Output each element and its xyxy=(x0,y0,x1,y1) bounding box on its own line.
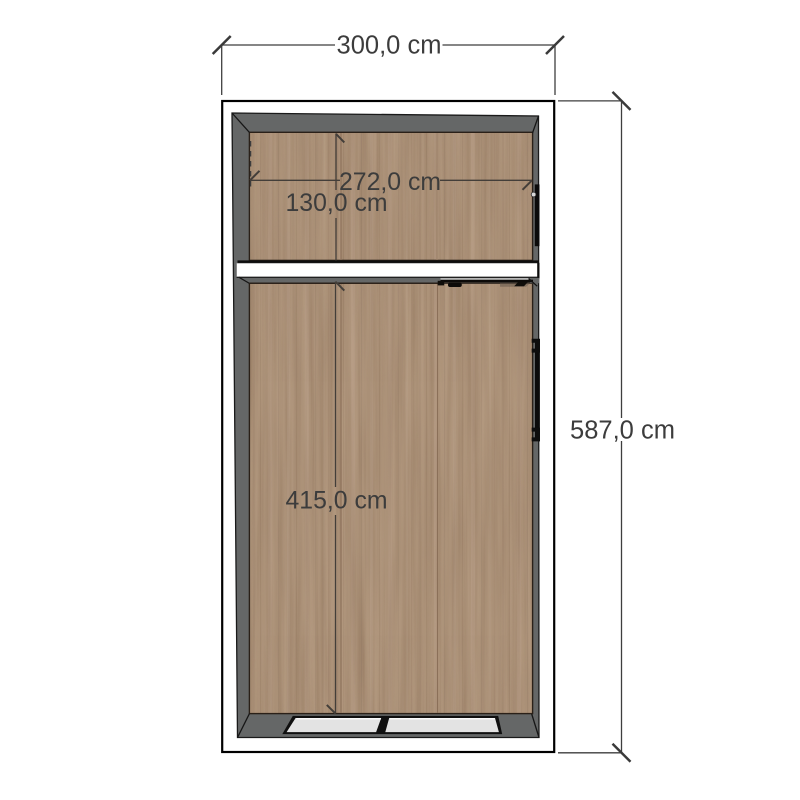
svg-text:415,0 cm: 415,0 cm xyxy=(286,488,388,515)
svg-text:300,0 cm: 300,0 cm xyxy=(337,31,442,59)
svg-text:587,0 cm: 587,0 cm xyxy=(570,416,675,444)
svg-text:130,0 cm: 130,0 cm xyxy=(286,190,388,217)
